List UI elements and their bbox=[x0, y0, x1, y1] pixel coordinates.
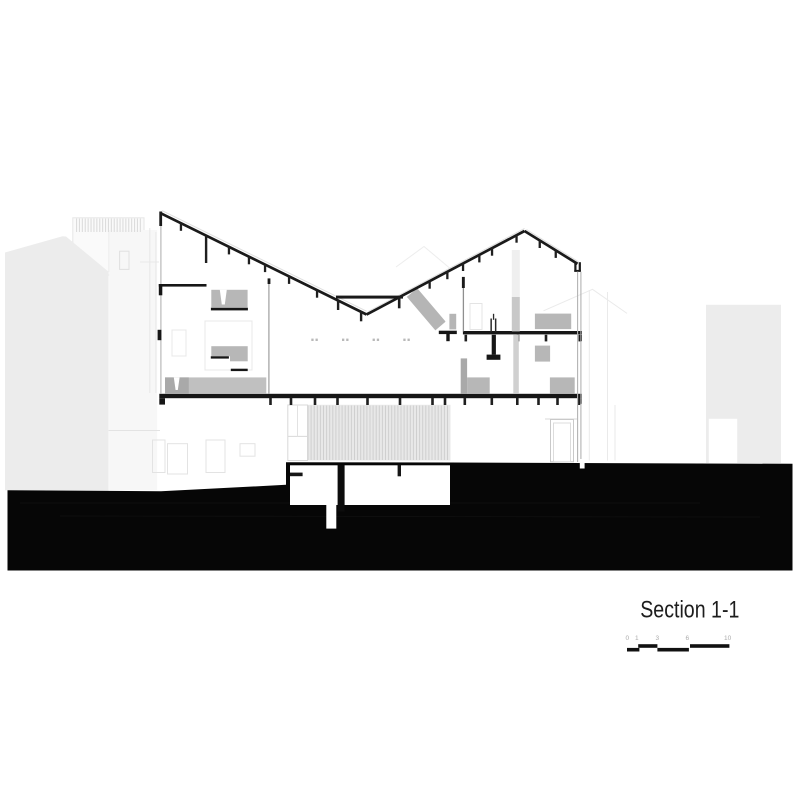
svg-text:1: 1 bbox=[635, 635, 639, 642]
svg-text:10: 10 bbox=[724, 635, 732, 642]
svg-text:6: 6 bbox=[686, 635, 690, 642]
svg-text:0: 0 bbox=[626, 635, 630, 642]
svg-text:Section 1-1: Section 1-1 bbox=[640, 595, 739, 622]
svg-text:3: 3 bbox=[656, 635, 660, 642]
